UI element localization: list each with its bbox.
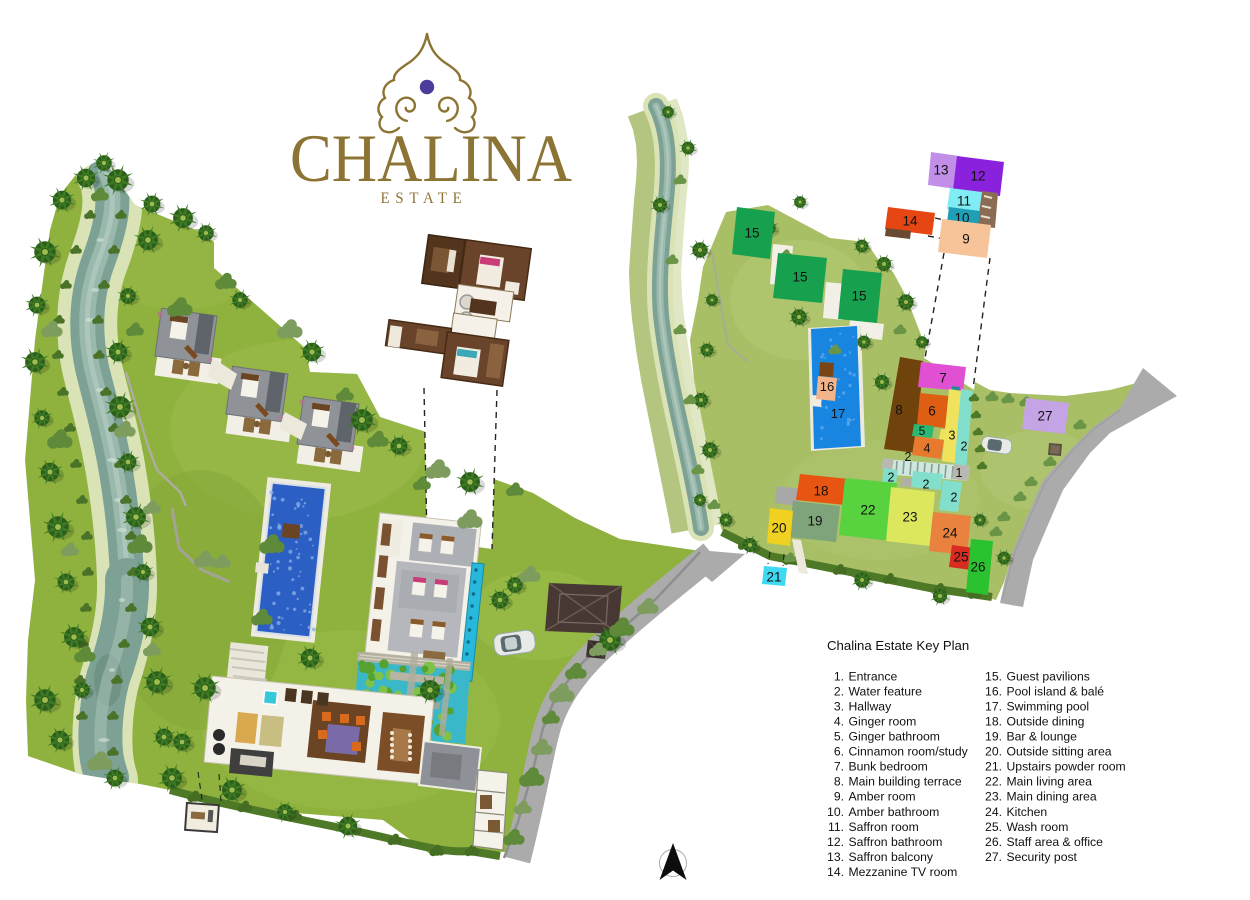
svg-text:Saffron balcony: Saffron balcony	[849, 850, 934, 864]
svg-text:1: 1	[956, 466, 963, 480]
svg-text:20: 20	[771, 521, 786, 536]
svg-text:Guest pavilions: Guest pavilions	[1007, 669, 1090, 683]
svg-text:22.: 22.	[985, 775, 1002, 789]
svg-text:2: 2	[951, 490, 958, 504]
svg-text:9.: 9.	[834, 790, 844, 804]
svg-text:Bar & lounge: Bar & lounge	[1007, 730, 1078, 744]
svg-text:Outside sitting area: Outside sitting area	[1007, 745, 1112, 759]
svg-text:13: 13	[933, 163, 948, 178]
svg-text:18: 18	[813, 484, 828, 499]
svg-text:27.: 27.	[985, 850, 1002, 864]
svg-text:8.: 8.	[834, 775, 844, 789]
svg-text:11.: 11.	[828, 820, 844, 834]
svg-text:1.: 1.	[834, 669, 844, 683]
svg-text:23: 23	[902, 510, 917, 525]
svg-text:Water feature: Water feature	[849, 684, 923, 698]
svg-text:15: 15	[851, 289, 866, 304]
svg-text:13.: 13.	[827, 850, 844, 864]
svg-text:Mezzanine TV room: Mezzanine TV room	[849, 865, 958, 879]
svg-text:2: 2	[905, 450, 912, 464]
svg-text:25: 25	[953, 550, 968, 565]
svg-text:26: 26	[970, 560, 985, 575]
svg-text:Ginger room: Ginger room	[849, 714, 917, 728]
svg-text:ESTATE: ESTATE	[381, 190, 468, 207]
svg-text:16: 16	[820, 379, 834, 394]
svg-text:14: 14	[902, 214, 918, 229]
svg-text:Kitchen: Kitchen	[1007, 805, 1048, 819]
svg-text:18.: 18.	[985, 714, 1002, 728]
svg-text:3: 3	[949, 428, 956, 442]
svg-text:4: 4	[924, 441, 931, 455]
svg-text:Outside dining: Outside dining	[1007, 714, 1085, 728]
svg-text:8: 8	[895, 403, 903, 418]
svg-text:5: 5	[919, 424, 926, 438]
svg-text:24: 24	[942, 526, 958, 541]
svg-text:16.: 16.	[985, 684, 1002, 698]
svg-text:11: 11	[957, 194, 971, 209]
svg-text:Main building terrace: Main building terrace	[849, 775, 962, 789]
svg-text:2.: 2.	[834, 684, 844, 698]
svg-text:20.: 20.	[985, 745, 1002, 759]
svg-text:26.: 26.	[985, 835, 1002, 849]
svg-text:Chalina Estate Key Plan: Chalina Estate Key Plan	[827, 638, 969, 653]
svg-text:19: 19	[807, 514, 822, 529]
svg-text:6.: 6.	[834, 745, 844, 759]
svg-text:3.: 3.	[834, 699, 844, 713]
svg-text:15: 15	[792, 270, 807, 285]
svg-text:Amber bathroom: Amber bathroom	[849, 805, 940, 819]
svg-text:Entrance: Entrance	[849, 669, 898, 683]
svg-text:Swimming pool: Swimming pool	[1007, 699, 1090, 713]
svg-text:2: 2	[923, 477, 930, 491]
svg-text:21: 21	[766, 570, 781, 585]
svg-text:17.: 17.	[985, 699, 1002, 713]
svg-text:Hallway: Hallway	[849, 699, 893, 713]
svg-text:Security post: Security post	[1007, 850, 1078, 864]
svg-text:12: 12	[970, 169, 985, 184]
svg-text:Saffron bathroom: Saffron bathroom	[849, 835, 943, 849]
svg-text:6: 6	[928, 404, 936, 419]
svg-text:7.: 7.	[834, 760, 844, 774]
svg-text:5.: 5.	[834, 730, 844, 744]
svg-text:Saffron room: Saffron room	[849, 820, 919, 834]
svg-text:15.: 15.	[985, 669, 1002, 683]
svg-text:Pool island & balé: Pool island & balé	[1007, 684, 1105, 698]
svg-text:24.: 24.	[985, 805, 1002, 819]
svg-text:14.: 14.	[827, 865, 844, 879]
svg-text:10.: 10.	[827, 805, 844, 819]
svg-text:27: 27	[1037, 409, 1052, 424]
svg-text:2: 2	[961, 439, 968, 453]
svg-text:Ginger bathroom: Ginger bathroom	[849, 730, 940, 744]
svg-text:17: 17	[831, 406, 845, 421]
svg-text:15: 15	[744, 226, 759, 241]
svg-text:22: 22	[860, 503, 875, 518]
svg-text:Main dining area: Main dining area	[1007, 790, 1097, 804]
svg-text:12.: 12.	[827, 835, 844, 849]
svg-text:Cinnamon room/study: Cinnamon room/study	[849, 745, 969, 759]
svg-text:Main living area: Main living area	[1007, 775, 1093, 789]
svg-text:4.: 4.	[834, 714, 844, 728]
svg-text:23.: 23.	[985, 790, 1002, 804]
svg-text:25.: 25.	[985, 820, 1002, 834]
svg-text:Upstairs powder room: Upstairs powder room	[1007, 760, 1126, 774]
svg-text:Bunk bedroom: Bunk bedroom	[849, 760, 928, 774]
svg-text:Wash room: Wash room	[1007, 820, 1069, 834]
svg-text:19.: 19.	[985, 730, 1002, 744]
svg-text:Staff area & office: Staff area & office	[1007, 835, 1104, 849]
svg-text:9: 9	[962, 232, 970, 247]
svg-text:Amber room: Amber room	[849, 790, 916, 804]
svg-text:CHALINA: CHALINA	[290, 120, 572, 196]
svg-text:7: 7	[939, 371, 947, 386]
svg-text:21.: 21.	[985, 760, 1002, 774]
